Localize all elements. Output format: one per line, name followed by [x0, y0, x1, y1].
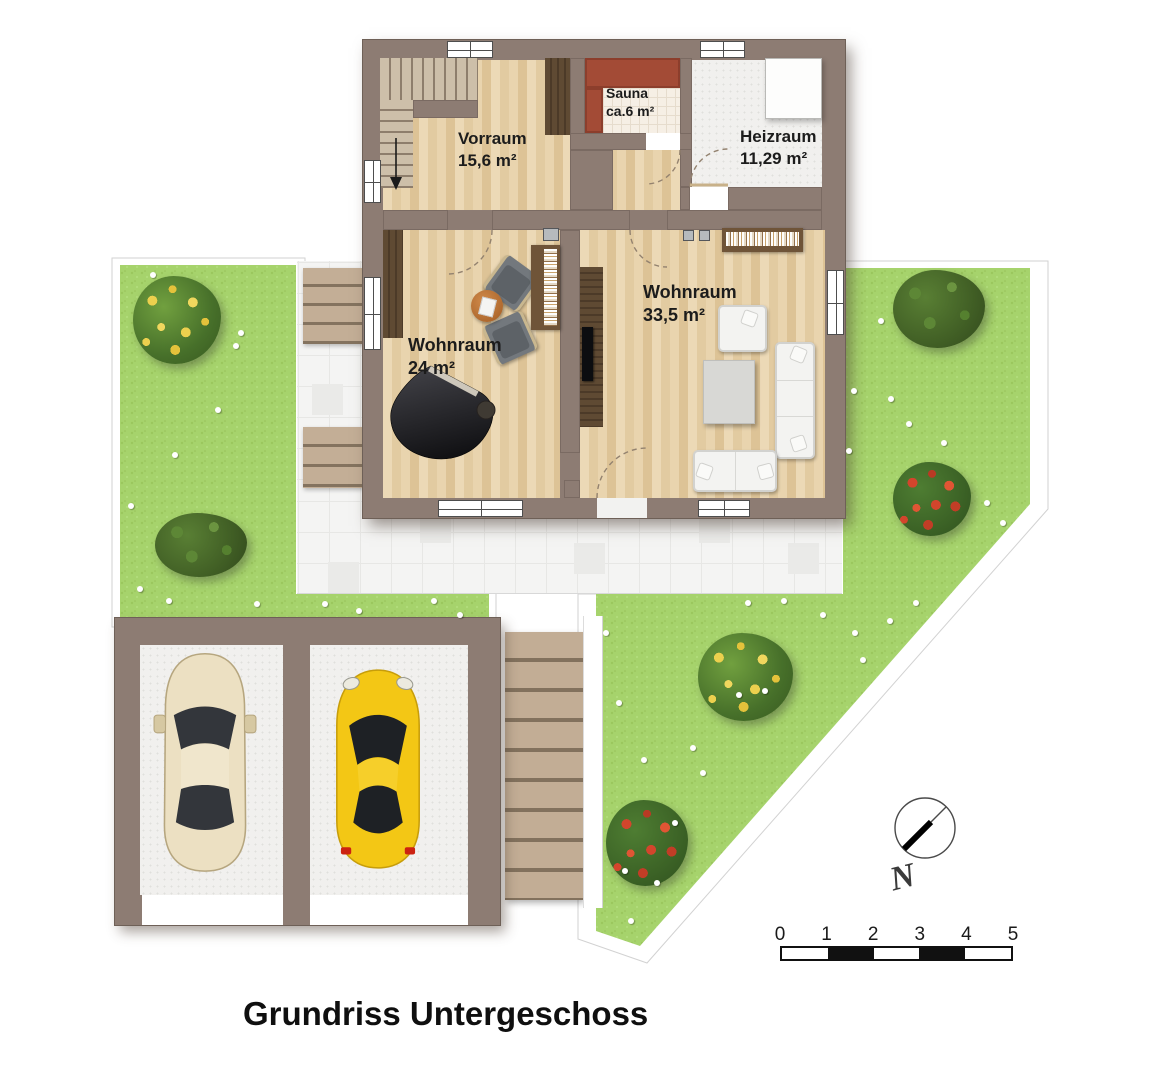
flower-icon — [781, 598, 787, 604]
flower-icon — [238, 330, 244, 336]
flower-icon — [690, 745, 696, 751]
flower-icon — [852, 630, 858, 636]
garden-steps-lower — [303, 427, 363, 488]
room-area: 11,29 m² — [740, 148, 817, 170]
floor-plan-canvas: Vorraum 15,6 m² Sauna ca.6 m² Heizraum 1… — [0, 0, 1157, 1080]
flower-icon — [820, 612, 826, 618]
flower-icon — [128, 503, 134, 509]
flower-icon — [736, 692, 742, 698]
room-area: 24 m² — [408, 357, 502, 380]
flower-icon — [984, 500, 990, 506]
yellow-car-icon — [323, 666, 433, 872]
flower-icon — [913, 600, 919, 606]
flower-icon — [215, 407, 221, 413]
flower-icon — [254, 601, 260, 607]
piano-stool-icon — [477, 401, 495, 419]
room-area: ca.6 m² — [606, 103, 654, 121]
compass-north-label: N — [885, 856, 920, 893]
scale-bar: 0 1 2 3 4 5 — [780, 924, 1013, 961]
compass-icon: N — [885, 788, 970, 893]
scale-tick-labels: 0 1 2 3 4 5 — [780, 924, 1013, 944]
flower-icon — [1000, 520, 1006, 526]
room-name: Sauna — [606, 85, 654, 103]
flower-icon — [356, 608, 362, 614]
flower-icon — [166, 598, 172, 604]
flower-icon — [137, 586, 143, 592]
scale-tick: 1 — [821, 924, 832, 946]
flower-icon — [322, 601, 328, 607]
house-floor-plan: Vorraum 15,6 m² Sauna ca.6 m² Heizraum 1… — [363, 40, 845, 518]
flower-icon — [150, 272, 156, 278]
garage-door-opening — [310, 895, 468, 925]
garden-steps-upper — [303, 268, 363, 344]
stairs-side-path — [583, 616, 603, 908]
flower-icon — [700, 770, 706, 776]
flower-icon — [654, 880, 660, 886]
flower-icon — [878, 318, 884, 324]
flower-icon — [941, 440, 947, 446]
flower-icon — [887, 618, 893, 624]
garage-door-opening — [142, 895, 283, 925]
scale-bar-segments — [780, 946, 1013, 961]
flower-icon — [888, 396, 894, 402]
flower-icon — [431, 598, 437, 604]
scale-tick: 4 — [961, 924, 972, 946]
flower-icon — [641, 757, 647, 763]
flower-icon — [846, 448, 852, 454]
room-name: Heizraum — [740, 126, 817, 148]
room-label-wohnraum-rechts: Wohnraum 33,5 m² — [643, 281, 737, 327]
flower-icon — [628, 918, 634, 924]
room-name: Wohnraum — [643, 281, 737, 304]
scale-tick: 3 — [915, 924, 926, 946]
room-label-wohnraum-links: Wohnraum 24 m² — [408, 334, 502, 380]
room-name: Vorraum — [458, 128, 527, 150]
scale-tick: 0 — [775, 924, 786, 946]
room-label-vorraum: Vorraum 15,6 m² — [458, 128, 527, 172]
door-swing-overlay — [363, 40, 845, 518]
room-area: 15,6 m² — [458, 150, 527, 172]
room-label-sauna: Sauna ca.6 m² — [606, 85, 654, 121]
flower-icon — [745, 600, 751, 606]
flower-icon — [457, 612, 463, 618]
flower-icon — [672, 820, 678, 826]
flower-icon — [860, 657, 866, 663]
beige-car-icon — [153, 650, 257, 878]
terrace-stairs — [505, 632, 583, 900]
page-title: Grundriss Untergeschoss — [243, 995, 648, 1033]
flower-icon — [172, 452, 178, 458]
flower-icon — [616, 700, 622, 706]
flower-icon — [233, 343, 239, 349]
scale-tick: 5 — [1008, 924, 1019, 946]
room-label-heizraum: Heizraum 11,29 m² — [740, 126, 817, 170]
flower-icon — [622, 868, 628, 874]
room-name: Wohnraum — [408, 334, 502, 357]
garage — [115, 618, 500, 925]
flower-icon — [851, 388, 857, 394]
room-area: 33,5 m² — [643, 304, 737, 327]
flower-icon — [906, 421, 912, 427]
flower-icon — [603, 630, 609, 636]
flower-icon — [762, 688, 768, 694]
scale-tick: 2 — [868, 924, 879, 946]
